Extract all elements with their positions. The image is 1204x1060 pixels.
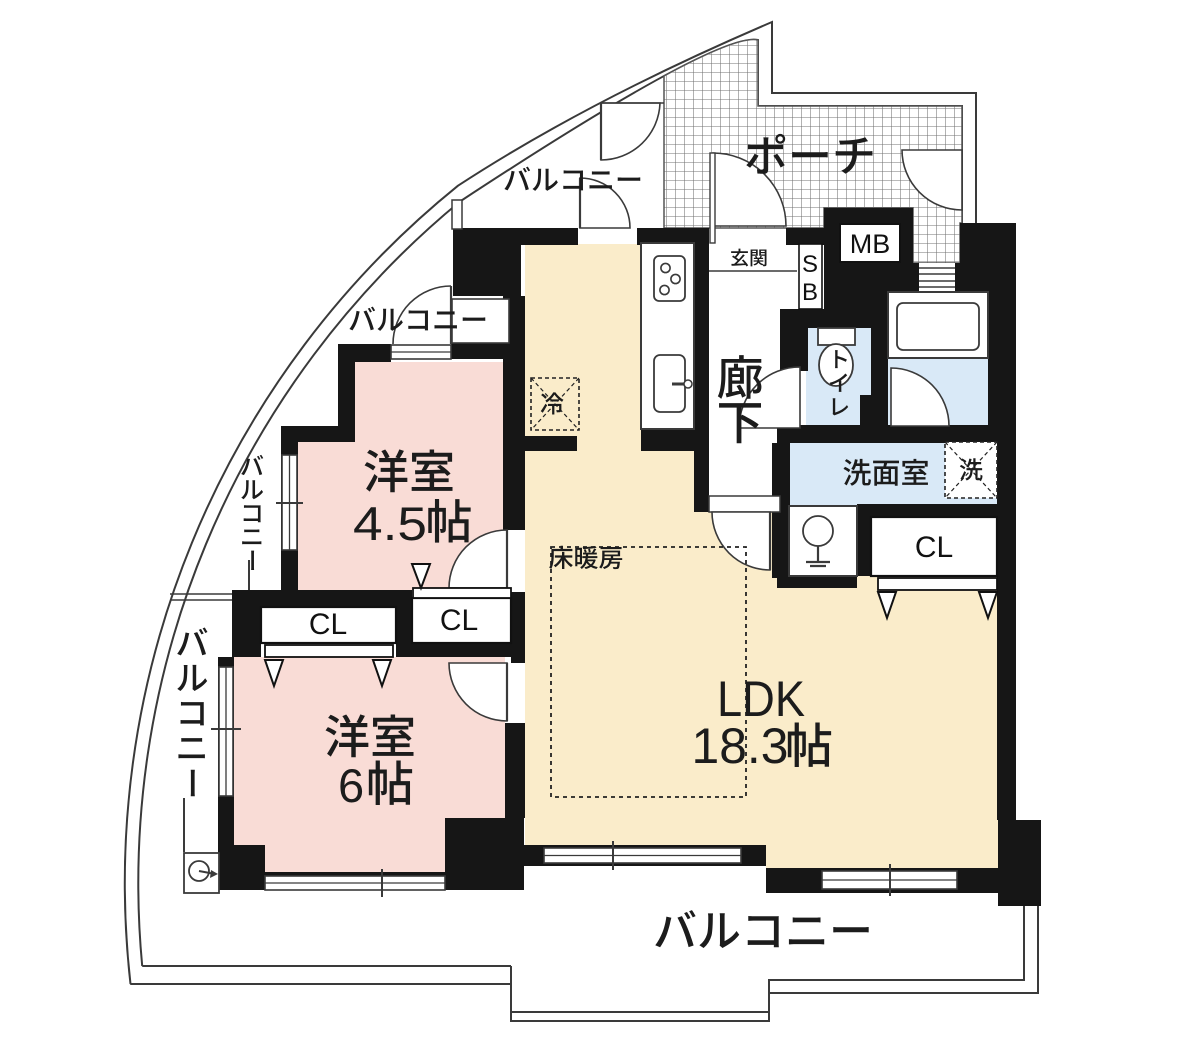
svg-text:6: 6 xyxy=(338,759,364,812)
svg-text:CL: CL xyxy=(440,604,478,637)
svg-text:MB: MB xyxy=(850,229,891,259)
svg-text:CL: CL xyxy=(915,531,953,564)
svg-text:4.5: 4.5 xyxy=(353,497,427,550)
svg-text:B: B xyxy=(802,279,818,306)
svg-text:S: S xyxy=(802,251,818,278)
svg-text:18.3: 18.3 xyxy=(692,718,789,774)
svg-text:CL: CL xyxy=(309,608,347,641)
